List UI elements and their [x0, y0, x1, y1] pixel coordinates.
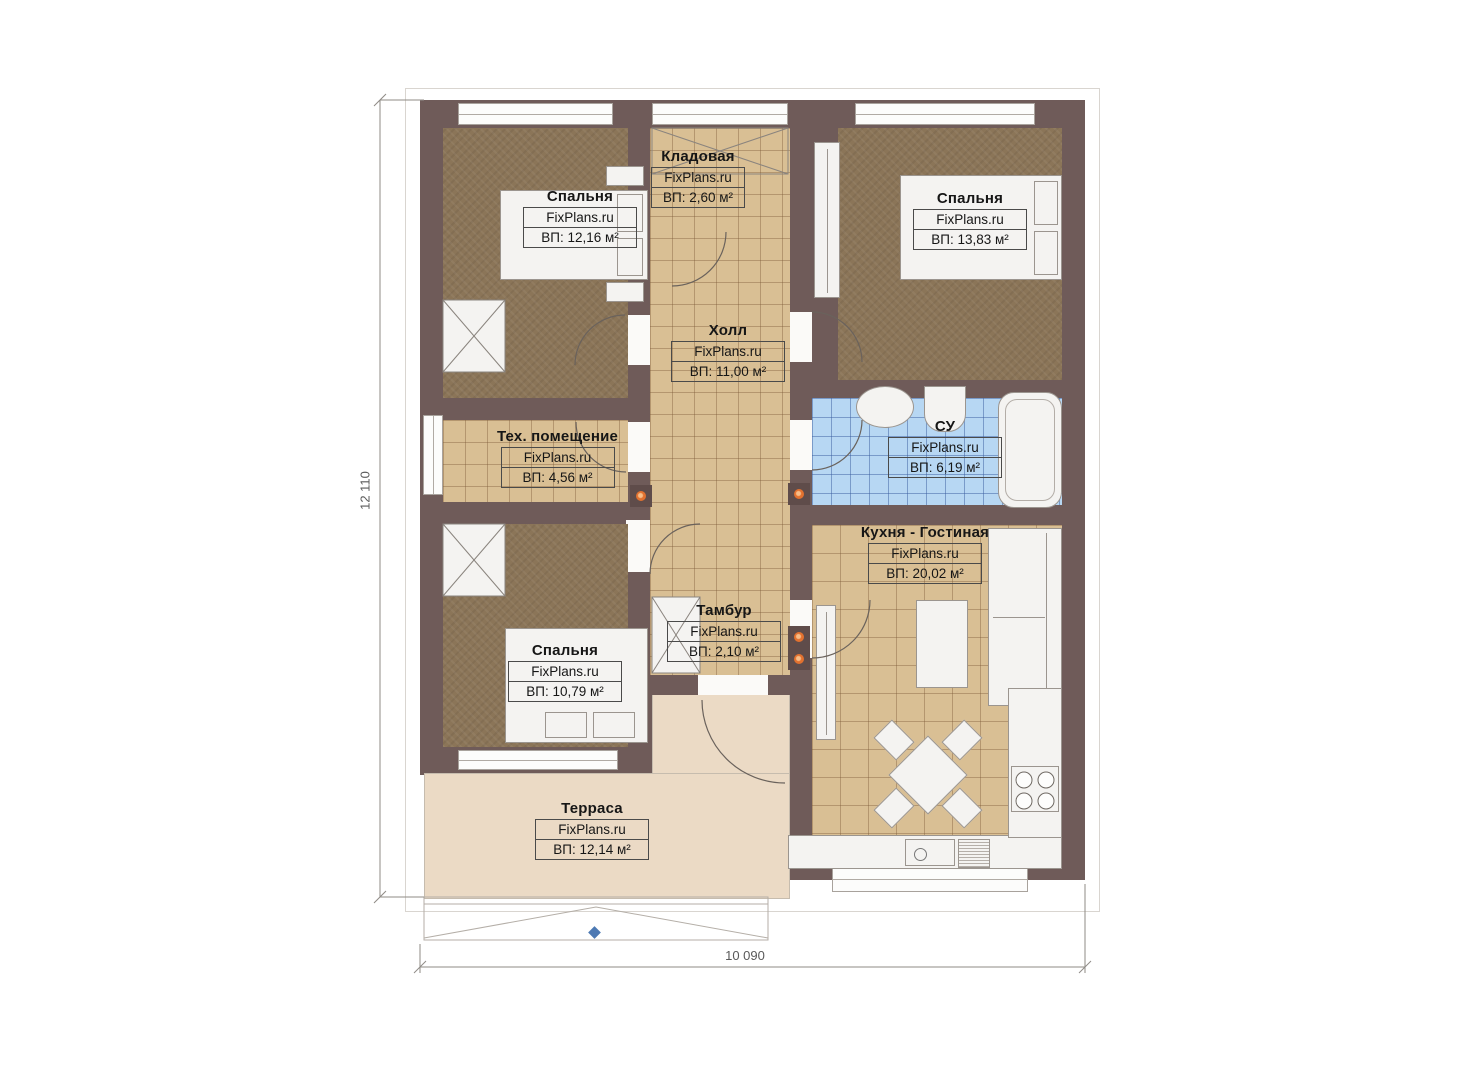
- window-bedroom-1-top: [458, 103, 613, 125]
- room-label-bedroom-3: Спальня FixPlans.ru ВП: 10,79 м²: [497, 642, 633, 702]
- watermark: FixPlans.ru: [535, 819, 649, 840]
- watermark: FixPlans.ru: [913, 209, 1027, 230]
- heating-point-icon: [788, 648, 810, 670]
- watermark: FixPlans.ru: [888, 437, 1002, 458]
- nightstand: [606, 282, 644, 302]
- room-area: ВП: 13,83 м²: [913, 229, 1027, 250]
- watermark: FixPlans.ru: [501, 447, 615, 468]
- room-area: ВП: 2,60 м²: [651, 187, 745, 208]
- door-gap-terrace: [698, 675, 768, 695]
- room-label-terrace: Терраса FixPlans.ru ВП: 12,14 м²: [524, 800, 660, 860]
- heating-point-icon: [630, 485, 652, 507]
- room-label-kitchen-living: Кухня - Гостиная FixPlans.ru ВП: 20,02 м…: [845, 524, 1005, 584]
- door-gap-bedroom-1: [626, 315, 650, 365]
- stove: [1011, 766, 1059, 812]
- watermark: FixPlans.ru: [508, 661, 622, 682]
- dimension-horizontal: 10 090: [705, 948, 785, 963]
- room-area: ВП: 10,79 м²: [508, 681, 622, 702]
- closet-bedroom-2: [814, 142, 840, 298]
- kitchen-counter-right: [1008, 688, 1062, 838]
- window-bedroom-2-top: [855, 103, 1035, 125]
- window-tech-room-left: [423, 415, 443, 495]
- room-floor-hall-strip: [650, 128, 790, 675]
- window-storage-top: [652, 103, 788, 125]
- watermark: FixPlans.ru: [667, 621, 781, 642]
- radiator: [816, 605, 836, 740]
- terrace-porch-notch: [652, 695, 790, 774]
- nightstand: [606, 166, 644, 186]
- room-label-vestibule: Тамбур FixPlans.ru ВП: 2,10 м²: [664, 602, 784, 662]
- window-kitchen-bottom: [832, 866, 1028, 892]
- room-label-tech-room: Тех. помещение FixPlans.ru ВП: 4,56 м²: [480, 428, 635, 488]
- watermark: FixPlans.ru: [523, 207, 637, 228]
- room-area: ВП: 11,00 м²: [671, 361, 785, 382]
- dimension-vertical: 12 110: [358, 466, 373, 516]
- entrance-marker-icon: [588, 926, 601, 939]
- pillow: [545, 712, 587, 738]
- pillow: [593, 712, 635, 738]
- room-area: ВП: 12,16 м²: [523, 227, 637, 248]
- room-area: ВП: 6,19 м²: [888, 457, 1002, 478]
- room-label-bathroom: СУ FixPlans.ru ВП: 6,19 м²: [888, 418, 1002, 478]
- floor-plan-canvas: 12 110 10 090 Спальня FixPlans.ru ВП: 12…: [0, 0, 1474, 1080]
- room-area: ВП: 12,14 м²: [535, 839, 649, 860]
- room-label-hall: Холл FixPlans.ru ВП: 11,00 м²: [662, 322, 794, 382]
- watermark: FixPlans.ru: [651, 167, 745, 188]
- room-label-storage: Кладовая FixPlans.ru ВП: 2,60 м²: [648, 148, 748, 208]
- bathtub: [998, 392, 1062, 508]
- window-bedroom-3-bottom: [458, 750, 618, 770]
- door-gap-bathroom: [790, 420, 812, 470]
- heating-point-icon: [788, 626, 810, 648]
- room-area: ВП: 2,10 м²: [667, 641, 781, 662]
- door-gap-bedroom-3: [626, 520, 650, 572]
- watermark: FixPlans.ru: [868, 543, 982, 564]
- room-area: ВП: 20,02 м²: [868, 563, 982, 584]
- kitchen-drainboard: [958, 839, 990, 868]
- room-area: ВП: 4,56 м²: [501, 467, 615, 488]
- heating-point-icon: [788, 483, 810, 505]
- watermark: FixPlans.ru: [671, 341, 785, 362]
- room-label-bedroom-2: Спальня FixPlans.ru ВП: 13,83 м²: [902, 190, 1038, 250]
- kitchen-sink: [905, 839, 955, 866]
- room-label-bedroom-1: Спальня FixPlans.ru ВП: 12,16 м²: [512, 188, 648, 248]
- coffee-table: [916, 600, 968, 688]
